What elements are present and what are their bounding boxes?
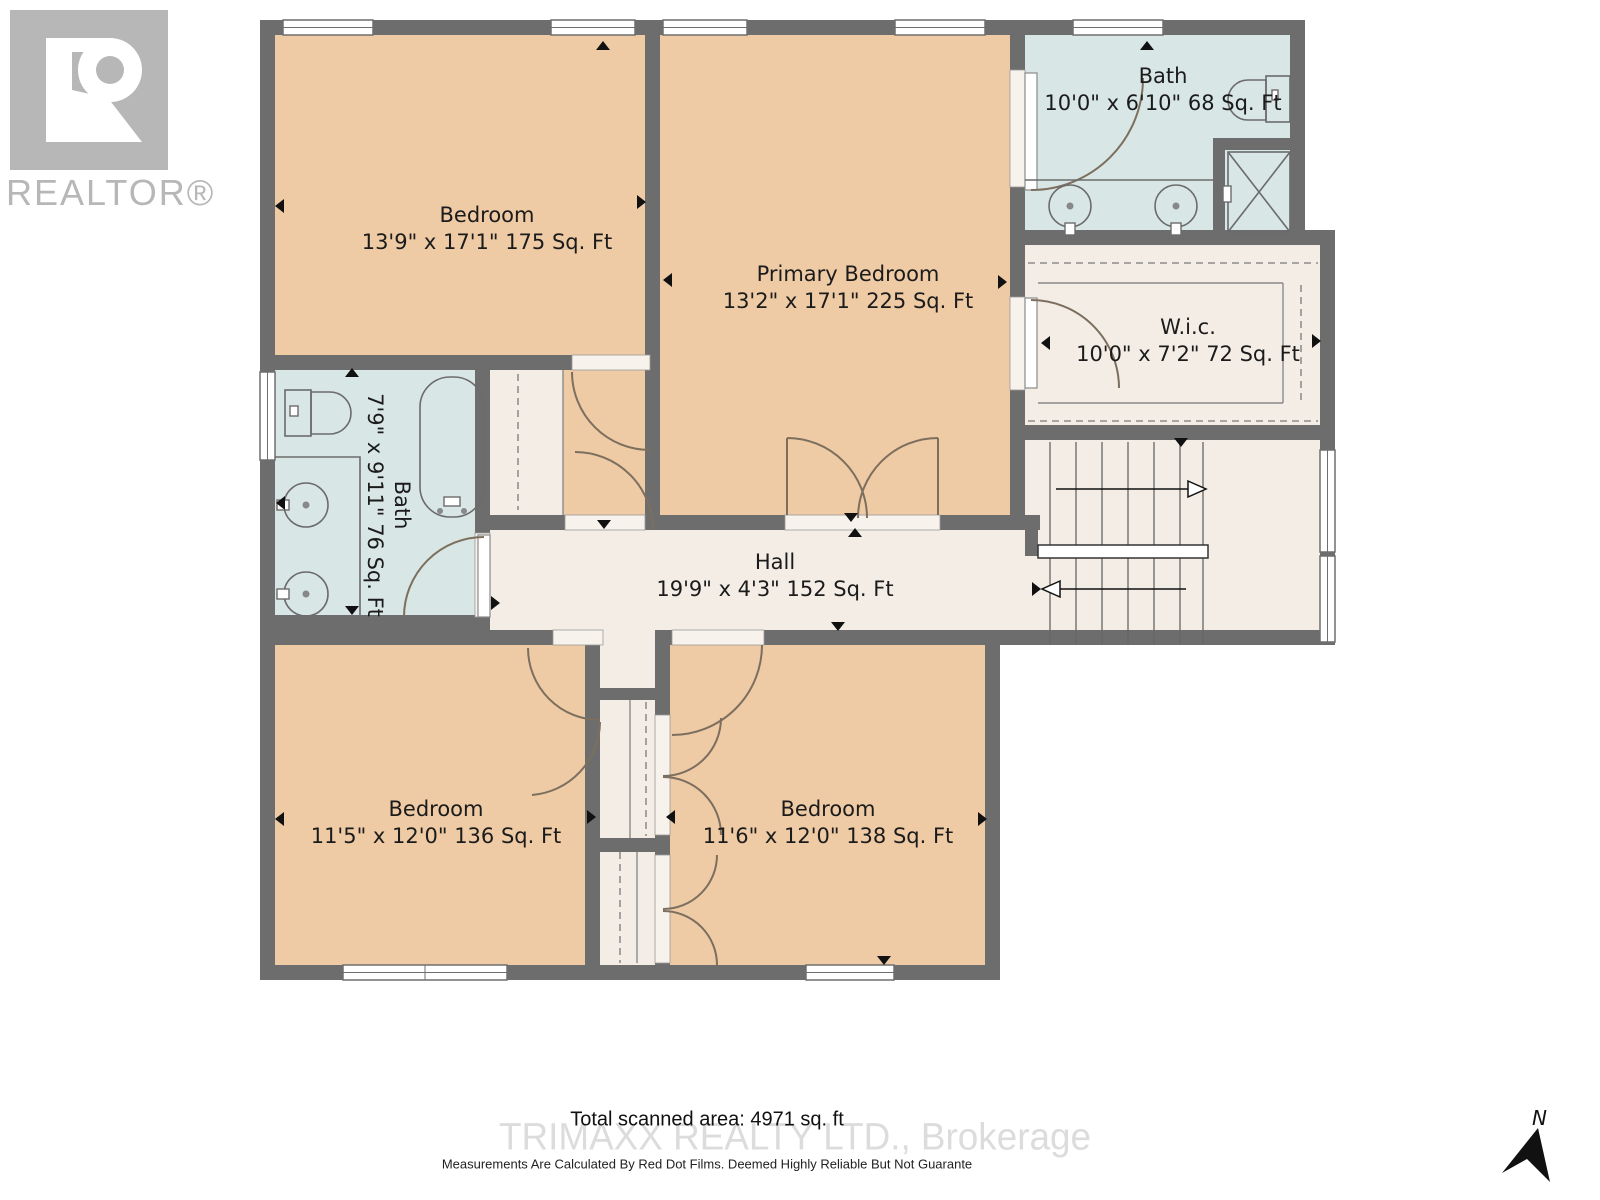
room-name: Bedroom xyxy=(311,796,562,823)
room-dims: 10'0" x 6'10" 68 Sq. Ft xyxy=(1044,90,1281,117)
window xyxy=(1320,450,1335,552)
room-label-bath-left: Bath 7'9" x 9'11" 76 Sq. Ft xyxy=(361,393,415,617)
room-dims: 10'0" x 7'2" 72 Sq. Ft xyxy=(1076,341,1300,368)
window xyxy=(343,965,507,980)
room-dims: 13'2" x 17'1" 225 Sq. Ft xyxy=(723,288,974,315)
room-name: Bath xyxy=(388,393,415,617)
room-label-wic: W.i.c. 10'0" x 7'2" 72 Sq. Ft xyxy=(1076,314,1300,368)
measurement-disclaimer: Measurements Are Calculated By Red Dot F… xyxy=(442,1157,972,1172)
room-dims: 13'9" x 17'1" 175 Sq. Ft xyxy=(362,229,613,256)
window xyxy=(1320,556,1335,642)
window xyxy=(806,965,894,980)
window xyxy=(283,20,373,35)
floor-bath-topright xyxy=(1010,20,1305,245)
window xyxy=(895,20,985,35)
room-label-bedroom-bottomleft: Bedroom 11'5" x 12'0" 136 Sq. Ft xyxy=(311,796,562,850)
room-dims: 11'6" x 12'0" 138 Sq. Ft xyxy=(703,823,954,850)
window xyxy=(551,20,635,35)
room-label-primary-bedroom: Primary Bedroom 13'2" x 17'1" 225 Sq. Ft xyxy=(723,261,974,315)
floor-bedroom-topleft xyxy=(260,20,660,370)
window xyxy=(260,372,275,460)
room-name: W.i.c. xyxy=(1076,314,1300,341)
north-label: N xyxy=(1532,1106,1547,1130)
room-name: Primary Bedroom xyxy=(723,261,974,288)
room-label-bedroom-bottommiddle: Bedroom 11'6" x 12'0" 138 Sq. Ft xyxy=(703,796,954,850)
window xyxy=(663,20,747,35)
north-arrow-icon: N xyxy=(1480,1095,1570,1195)
window xyxy=(1073,20,1163,35)
room-label-hall: Hall 19'9" x 4'3" 152 Sq. Ft xyxy=(656,549,893,603)
total-scanned-area: Total scanned area: 4971 sq. ft xyxy=(570,1109,844,1132)
room-name: Bedroom xyxy=(362,202,613,229)
room-dims: 7'9" x 9'11" 76 Sq. Ft xyxy=(361,393,388,617)
room-dims: 19'9" x 4'3" 152 Sq. Ft xyxy=(656,576,893,603)
room-name: Hall xyxy=(656,549,893,576)
room-label-bath-topright: Bath 10'0" x 6'10" 68 Sq. Ft xyxy=(1044,63,1281,117)
room-label-bedroom-topleft: Bedroom 13'9" x 17'1" 175 Sq. Ft xyxy=(362,202,613,256)
floor-stairs xyxy=(1010,440,1335,645)
room-dims: 11'5" x 12'0" 136 Sq. Ft xyxy=(311,823,562,850)
room-name: Bath xyxy=(1044,63,1281,90)
room-name: Bedroom xyxy=(703,796,954,823)
floorplan-page: REALTOR® xyxy=(0,0,1600,1200)
stair-railing xyxy=(1038,545,1208,558)
